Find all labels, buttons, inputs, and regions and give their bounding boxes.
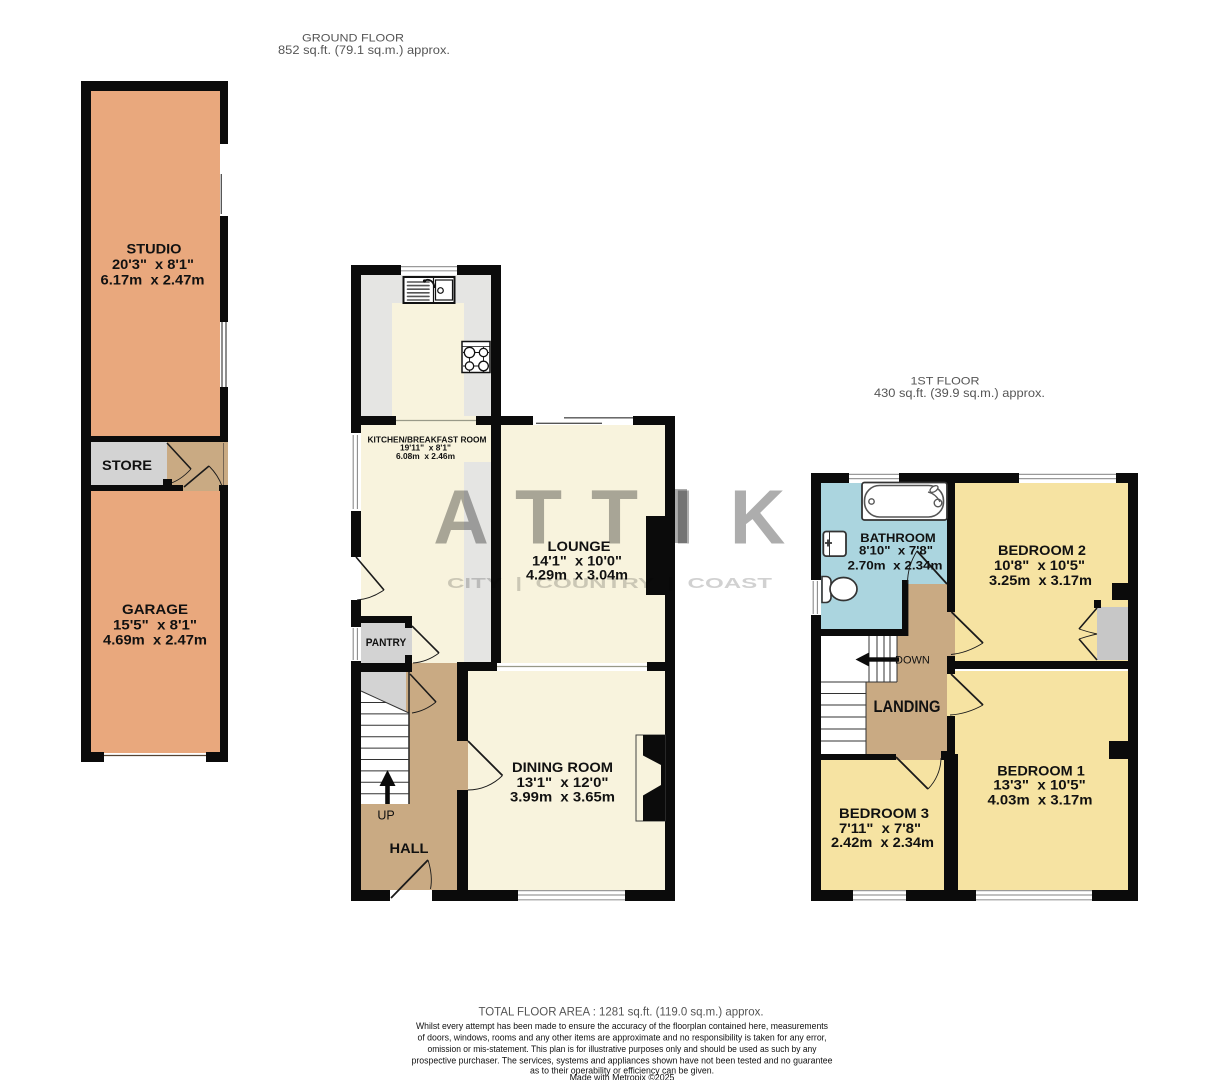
svg-text:13'3" x 10'5": 13'3" x 10'5" (993, 777, 1086, 793)
svg-text:DINING ROOM: DINING ROOM (512, 759, 613, 775)
svg-text:UP: UP (377, 809, 394, 823)
svg-text:I: I (673, 475, 694, 561)
svg-text:GARAGE: GARAGE (122, 601, 188, 617)
svg-text:CITY | COUNTRY | COAST: CITY | COUNTRY | COAST (447, 575, 772, 592)
svg-text:T: T (515, 475, 562, 561)
svg-text:A: A (433, 475, 489, 561)
svg-text:omission or mis-statement. Thi: omission or mis-statement. This plan is … (428, 1044, 818, 1054)
svg-text:K: K (730, 475, 786, 561)
svg-text:of doors, windows, rooms and a: of doors, windows, rooms and any other i… (418, 1033, 827, 1043)
svg-text:BEDROOM 3: BEDROOM 3 (839, 805, 929, 821)
svg-text:430 sq.ft. (39.9 sq.m.) approx: 430 sq.ft. (39.9 sq.m.) approx. (874, 386, 1045, 400)
svg-text:2.70m x 2.34m: 2.70m x 2.34m (848, 559, 943, 573)
svg-text:852 sq.ft. (79.1 sq.m.) approx: 852 sq.ft. (79.1 sq.m.) approx. (278, 43, 450, 57)
svg-text:3.25m x 3.17m: 3.25m x 3.17m (989, 572, 1092, 588)
svg-text:20'3" x 8'1": 20'3" x 8'1" (112, 256, 194, 272)
svg-text:10'8" x 10'5": 10'8" x 10'5" (994, 557, 1085, 573)
svg-text:LANDING: LANDING (874, 698, 941, 716)
svg-text:PANTRY: PANTRY (366, 637, 407, 649)
svg-text:4.03m x 3.17m: 4.03m x 3.17m (988, 792, 1093, 808)
svg-text:8'10" x 7'8": 8'10" x 7'8" (859, 544, 933, 558)
svg-text:3.99m x 3.65m: 3.99m x 3.65m (510, 789, 615, 805)
svg-text:4.69m x 2.47m: 4.69m x 2.47m (103, 632, 207, 648)
svg-text:Made with Metropix ©2025: Made with Metropix ©2025 (570, 1073, 675, 1081)
svg-text:6.08m x 2.46m: 6.08m x 2.46m (396, 452, 455, 461)
svg-text:STORE: STORE (102, 458, 152, 473)
svg-text:prospective purchaser. The ser: prospective purchaser. The services, sys… (412, 1056, 833, 1066)
svg-text:2.42m x 2.34m: 2.42m x 2.34m (831, 834, 934, 850)
svg-text:Whilst every attempt has been: Whilst every attempt has been made to en… (416, 1021, 829, 1031)
svg-text:TOTAL FLOOR AREA : 1281 sq.ft.: TOTAL FLOOR AREA : 1281 sq.ft. (119.0 sq… (479, 1005, 764, 1019)
svg-text:DOWN: DOWN (895, 655, 930, 667)
svg-text:BEDROOM 2: BEDROOM 2 (998, 542, 1086, 558)
svg-text:6.17m x 2.47m: 6.17m x 2.47m (101, 272, 205, 288)
svg-text:15'5" x 8'1": 15'5" x 8'1" (113, 617, 197, 633)
svg-text:T: T (591, 475, 638, 561)
svg-text:HALL: HALL (390, 840, 429, 856)
svg-text:STUDIO: STUDIO (127, 241, 182, 257)
